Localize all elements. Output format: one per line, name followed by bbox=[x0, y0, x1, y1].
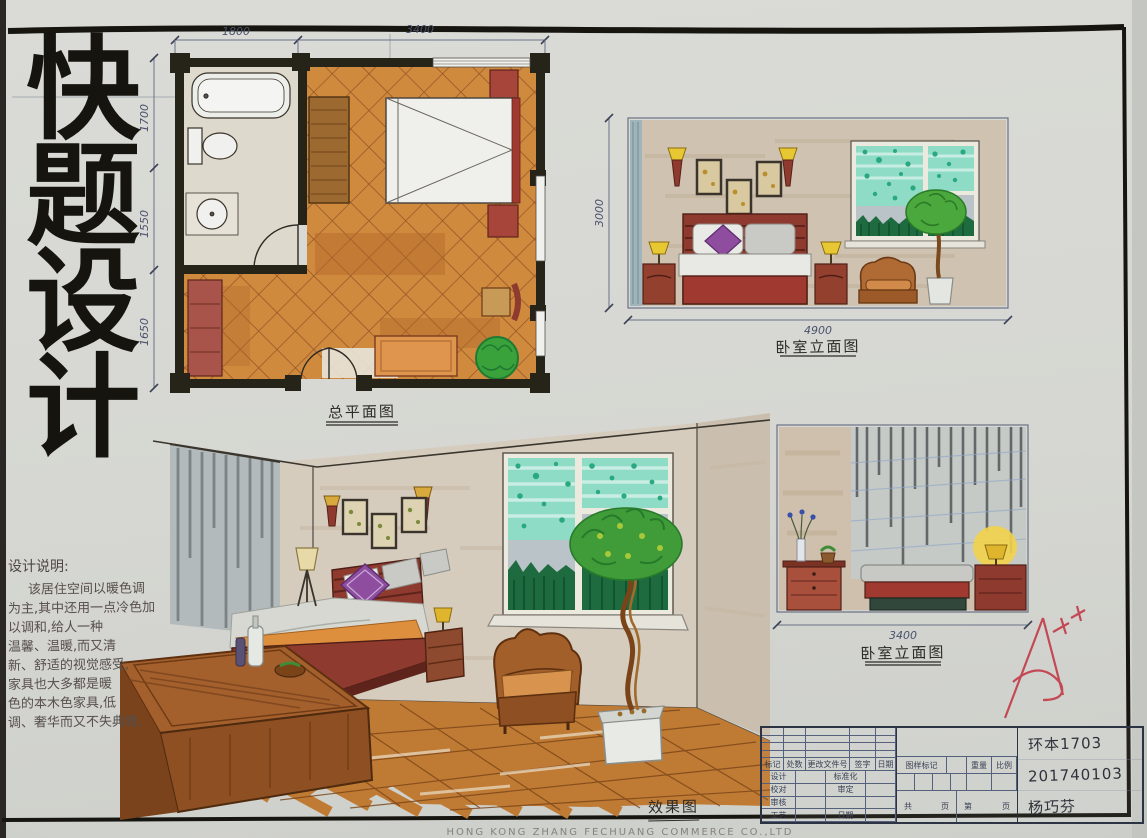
floor-plan-drawing: 1800 3400 1700 1550 1650 bbox=[130, 18, 580, 438]
elev2-caption: 卧室立面图 bbox=[860, 643, 945, 662]
tb-header-date: 日期 bbox=[876, 758, 896, 771]
bed-plan bbox=[386, 98, 520, 203]
bench-plan bbox=[375, 336, 457, 376]
tb-header-mark: 标记 bbox=[762, 758, 784, 771]
nightstand-plan-bottom bbox=[488, 205, 518, 237]
title-block: 标记 处数 更改文件号 签字 日期 设计 标准化 校对 审定 审核 工艺 日期 bbox=[760, 726, 1144, 824]
tb-drawing-mark: 图样标记 bbox=[897, 757, 947, 774]
persp-curtain bbox=[170, 444, 280, 636]
board-title-vertical: 快题设计 bbox=[3, 30, 134, 550]
elev1-armchair bbox=[859, 258, 917, 304]
wardrobe bbox=[309, 97, 349, 203]
title-block-middle-section: 图样标记 重量 比例 共 页 第 页 bbox=[897, 728, 1018, 822]
render-caption: 效果图 bbox=[648, 796, 699, 822]
elev1-windowsill bbox=[845, 241, 985, 248]
plant-plan bbox=[476, 337, 518, 379]
photo-right-margin bbox=[1132, 0, 1147, 838]
plan-dim-1700: 1700 bbox=[138, 104, 151, 132]
elevation-1-drawing: 3000 4900 卧室立面图 bbox=[595, 96, 1040, 358]
elev1-caption: 卧室立面图 bbox=[775, 337, 860, 356]
title-block-written-section: 环本1703 201740103 杨巧芬 bbox=[1018, 728, 1142, 822]
elev2-bed bbox=[861, 565, 973, 610]
cabinet-plan bbox=[188, 280, 222, 376]
tb-scale: 比例 bbox=[992, 757, 1017, 774]
tb-header-sign: 签字 bbox=[850, 758, 876, 771]
title-block-revision-section: 标记 处数 更改文件号 签字 日期 设计 标准化 校对 审定 审核 工艺 日期 bbox=[762, 728, 897, 822]
elev1-bed bbox=[679, 214, 811, 304]
elev2-dim-width: 3400 bbox=[889, 629, 917, 642]
design-notes-title: 设计说明: bbox=[8, 558, 166, 577]
toilet bbox=[203, 133, 237, 159]
paper-print-footer: HONG KONG ZHANG FECHUANG COMMERCE CO.,LT… bbox=[310, 827, 930, 838]
class-code: 环本1703 bbox=[1028, 732, 1103, 756]
perspective-rendering bbox=[120, 408, 780, 820]
tb-header-docno: 更改文件号 bbox=[806, 758, 850, 771]
red-signature-mark bbox=[975, 600, 1095, 735]
plan-dim-1800: 1800 bbox=[222, 25, 250, 38]
plan-dim-3400: 3400 bbox=[406, 23, 434, 36]
student-name: 杨巧芬 bbox=[1028, 795, 1077, 818]
tb-weight: 重量 bbox=[967, 757, 992, 774]
plan-dim-1550: 1550 bbox=[138, 210, 151, 238]
plan-dim-1650: 1650 bbox=[138, 318, 151, 346]
elev1-dim-width: 4900 bbox=[804, 324, 832, 337]
student-id: 201740103 bbox=[1028, 764, 1123, 785]
border-right-line bbox=[1124, 27, 1129, 817]
design-board-photo: 快题设计 1800 3400 1700 1550 1650 bbox=[0, 0, 1147, 838]
elev1-dim-height: 3000 bbox=[595, 199, 606, 227]
nightstand-plan-top bbox=[490, 70, 518, 98]
toilet-tank bbox=[188, 128, 202, 164]
tb-header-count: 处数 bbox=[784, 758, 806, 771]
design-notes: 设计说明: 该居住空间以暖色调 为主,其中还用一点冷色加 以调和,给人一种 温馨… bbox=[8, 558, 166, 732]
persp-armchair bbox=[494, 629, 581, 734]
elev1-window bbox=[845, 141, 985, 248]
elev1-curtain-strip bbox=[630, 120, 642, 306]
